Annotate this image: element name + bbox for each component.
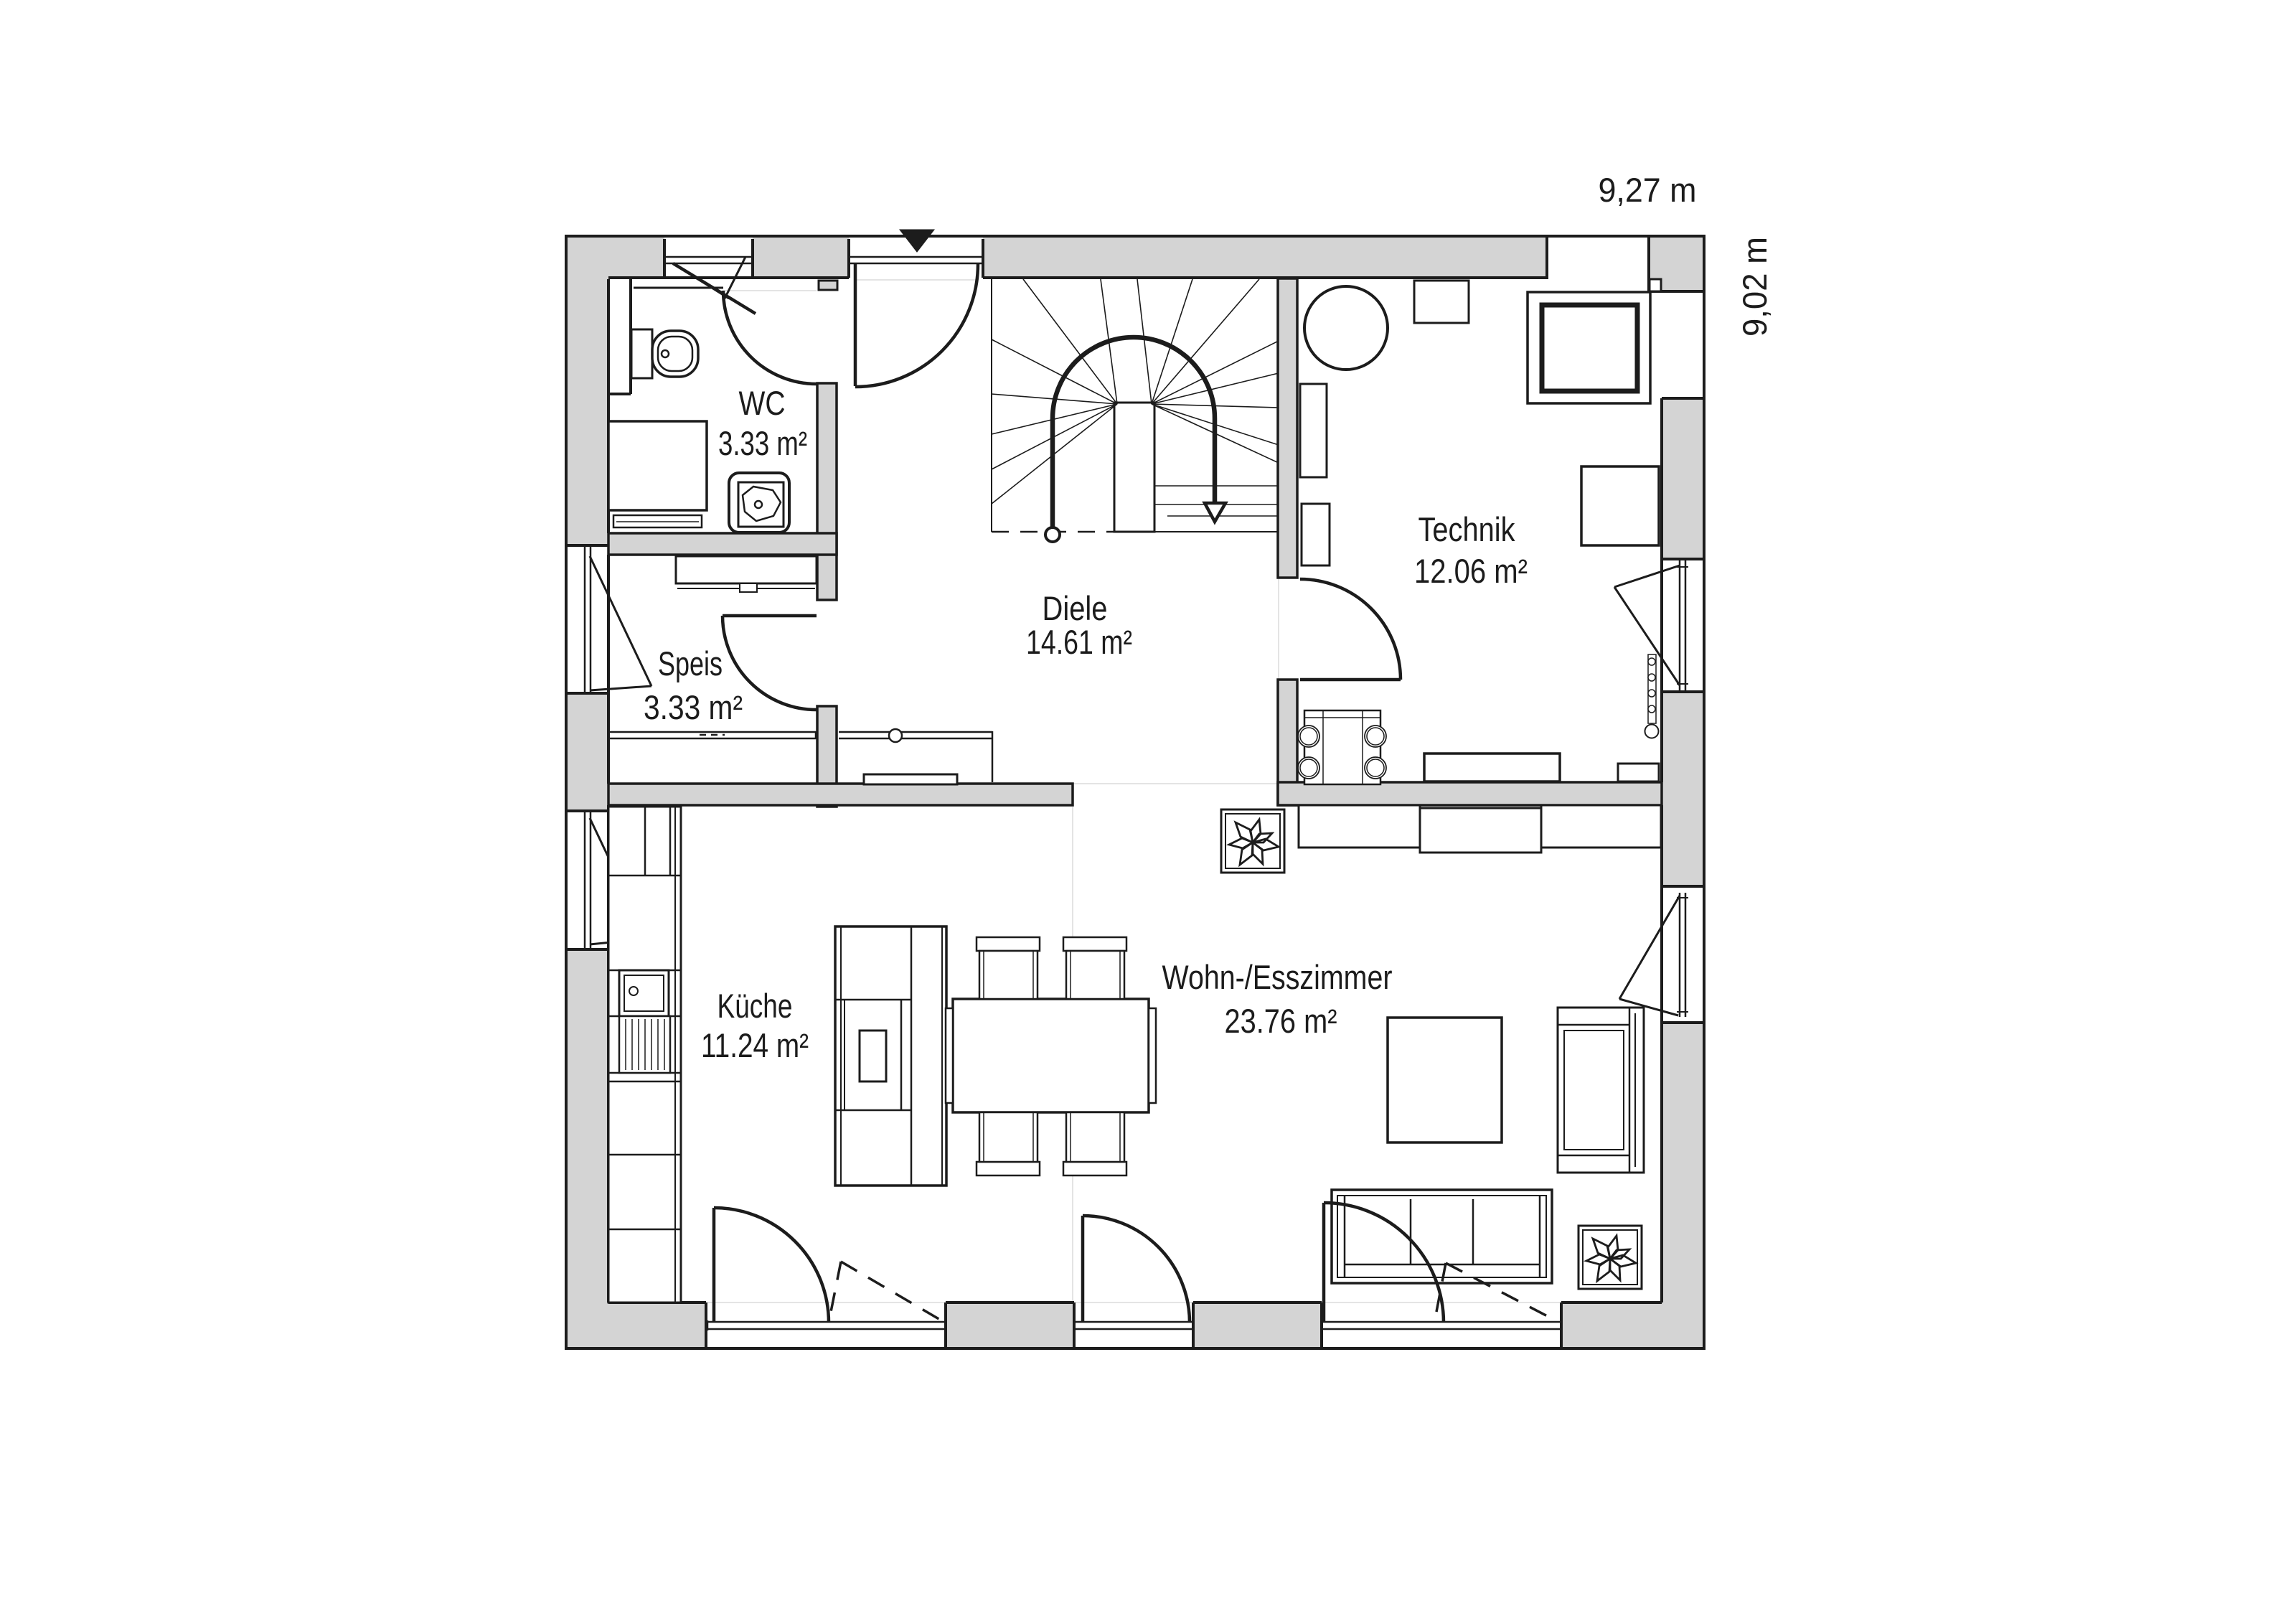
svg-text:Technik: Technik [1418, 510, 1515, 548]
svg-text:9,27 m: 9,27 m [1599, 171, 1697, 209]
svg-text:Speis: Speis [658, 644, 723, 682]
svg-text:23.76 m²: 23.76 m² [1225, 1002, 1337, 1040]
svg-text:3.33 m²: 3.33 m² [644, 688, 743, 726]
svg-text:14.61 m²: 14.61 m² [1026, 623, 1132, 661]
svg-text:Diele: Diele [1043, 589, 1108, 627]
svg-text:Küche: Küche [717, 987, 793, 1025]
svg-text:3.33 m²: 3.33 m² [718, 424, 807, 462]
svg-text:12.06 m²: 12.06 m² [1414, 552, 1528, 590]
svg-text:WC: WC [739, 384, 786, 422]
svg-text:9,02 m: 9,02 m [1736, 237, 1774, 337]
svg-text:Wohn-/Esszimmer: Wohn-/Esszimmer [1162, 958, 1393, 996]
svg-text:11.24 m²: 11.24 m² [701, 1026, 809, 1064]
